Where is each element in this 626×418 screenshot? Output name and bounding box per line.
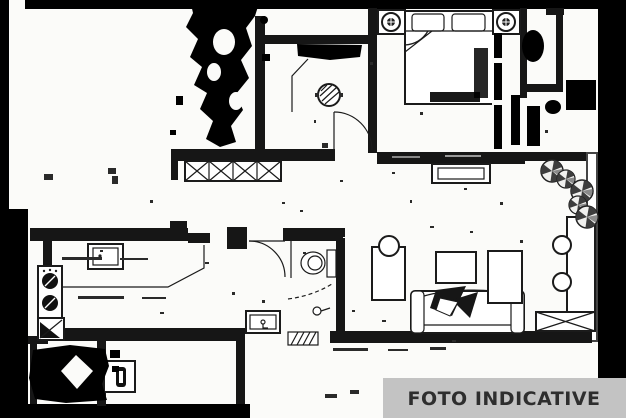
chair xyxy=(379,236,399,256)
banner-label: FOTO INDICATIVE xyxy=(407,388,600,410)
built-in-wardrobe xyxy=(185,161,281,181)
cabinet xyxy=(488,251,522,303)
dining-table xyxy=(567,217,595,313)
chair xyxy=(553,236,571,254)
radiator xyxy=(432,164,490,183)
threshold-hatch xyxy=(288,332,318,345)
sink xyxy=(88,244,123,269)
photo-indicative-banner: FOTO INDICATIVE xyxy=(383,378,626,418)
coffee-table xyxy=(436,252,476,283)
pillow-left xyxy=(412,14,444,31)
corner-cabinet xyxy=(38,318,64,340)
scanned-floorplan-photo: FOTO INDICATIVE xyxy=(0,0,626,418)
nightstand-lamp-right xyxy=(493,10,520,34)
stove-burners xyxy=(38,266,62,318)
chair xyxy=(553,273,571,291)
washbasin xyxy=(246,311,280,333)
nightstand-lamp-left xyxy=(378,10,405,34)
pillow-right xyxy=(452,14,485,31)
wardrobe-hatch xyxy=(536,312,595,331)
floor-plan-image: FOTO INDICATIVE xyxy=(0,0,626,418)
